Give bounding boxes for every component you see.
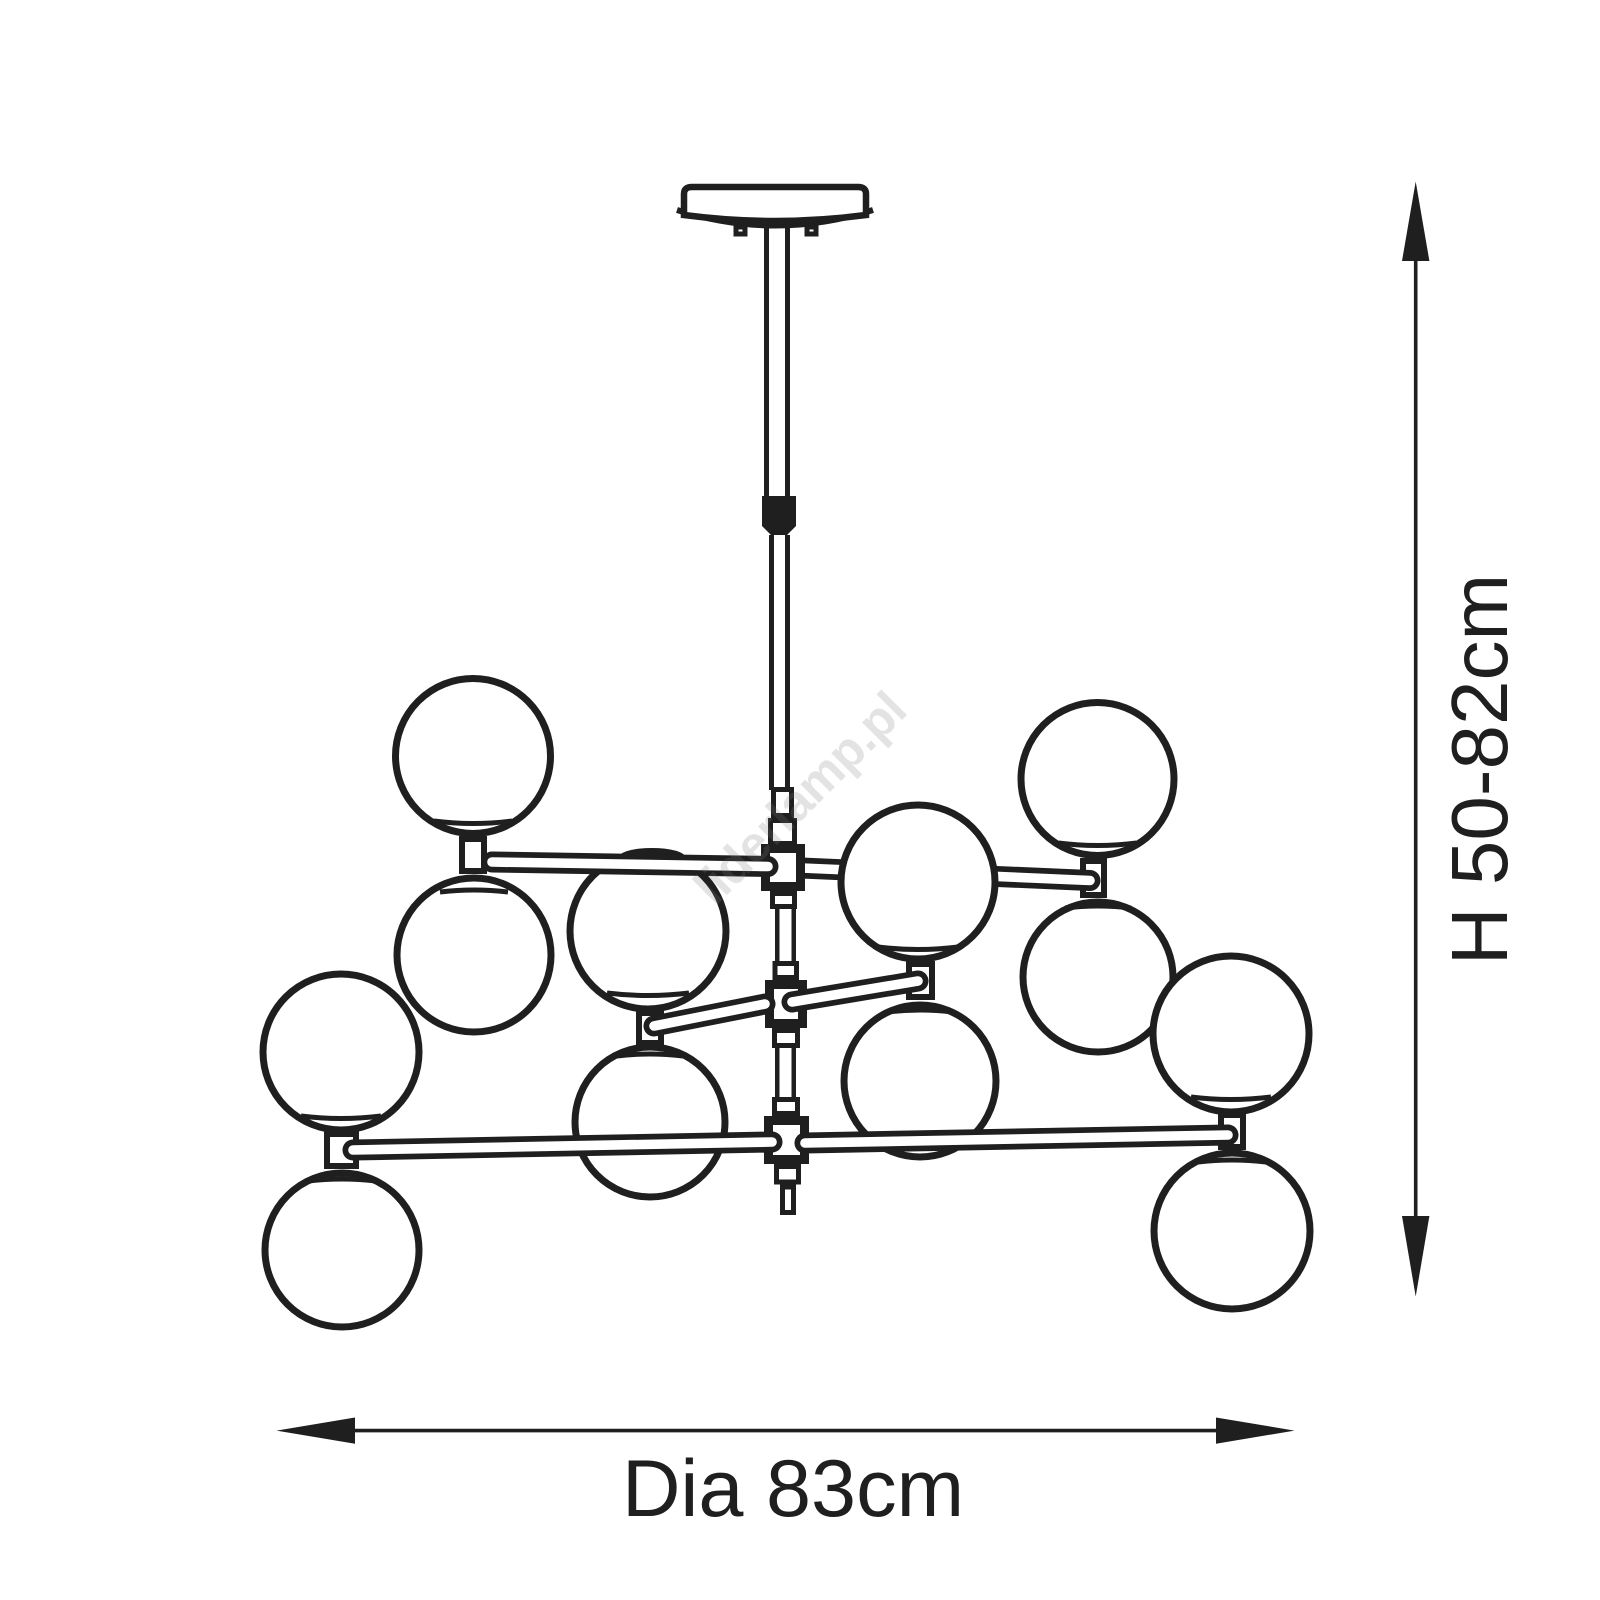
svg-text:H 50-82cm: H 50-82cm <box>1435 574 1524 965</box>
svg-text:Dia 83cm: Dia 83cm <box>622 1444 964 1534</box>
